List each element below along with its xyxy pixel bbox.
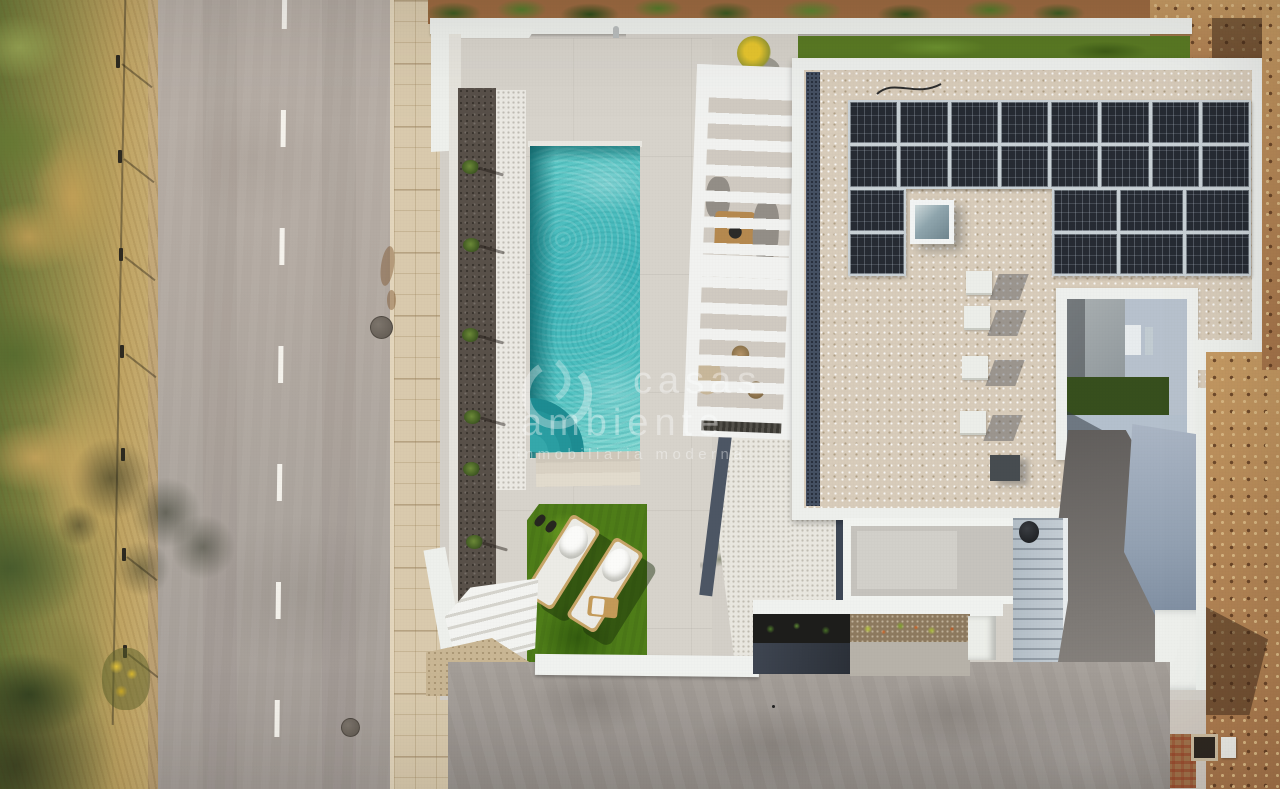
planter-shrub [462, 328, 479, 342]
solar-panel [1054, 190, 1117, 231]
solar-array-lower-right [1052, 188, 1251, 276]
solar-array-top [848, 100, 1251, 189]
terrace-floor [857, 531, 957, 589]
gravel-flower-planter [850, 614, 970, 644]
planter-shrub [466, 535, 483, 549]
slate-paving [753, 643, 850, 674]
white-gravel-strip [496, 90, 526, 490]
pergola-slats-upper [702, 86, 796, 259]
boundary-wall-top [430, 18, 1192, 34]
pool-wide-steps [536, 451, 641, 487]
sidewalk-stain [387, 290, 396, 310]
asphalt-dot [772, 705, 775, 708]
fence-post [120, 345, 124, 358]
driveway-asphalt [448, 662, 1170, 789]
solar-panel [850, 102, 897, 143]
manhole-cover [370, 316, 393, 339]
yellow-flower-bush [102, 648, 150, 710]
roof-cable [875, 76, 945, 100]
solar-panel [850, 234, 904, 275]
solar-array-lower-left [848, 188, 906, 276]
ac-unit [966, 271, 992, 295]
manhole-cover [341, 718, 360, 737]
pergola-slats-lower [696, 276, 789, 417]
solar-panel [850, 190, 904, 231]
lawn-bottom-wall [535, 654, 759, 677]
solar-panel [1051, 102, 1098, 143]
solar-panel [850, 146, 897, 187]
solar-panel [1202, 102, 1249, 143]
pool-top-shadow [530, 146, 640, 162]
roof-vent-box [990, 455, 1020, 481]
skylight-window [910, 200, 954, 244]
wooden-side-table [587, 595, 619, 618]
entry-structure-left [431, 30, 449, 148]
courtyard-turf [1067, 377, 1169, 415]
dirt-edge-strip [1262, 0, 1280, 370]
ac-unit [964, 306, 990, 330]
aerial-villa-photo: casas ambiente inmobiliaria moderna [0, 0, 1280, 789]
solar-panel [1101, 146, 1148, 187]
solar-panel [951, 146, 998, 187]
solar-panel [1051, 146, 1098, 187]
planter-shrub [463, 462, 480, 476]
solar-panel [900, 146, 947, 187]
planter-shrub [462, 160, 479, 174]
utility-pit [1191, 734, 1218, 761]
solar-panel [900, 102, 947, 143]
exterior-staircase [1013, 518, 1068, 668]
black-soil-planter [753, 614, 850, 644]
fence-post [116, 55, 120, 68]
fence-post [118, 150, 122, 163]
white-pillar-box [968, 616, 996, 660]
solar-panel [951, 102, 998, 143]
dirt-plot-right [1206, 352, 1280, 789]
solar-panel [1186, 190, 1249, 231]
planter-shrub [463, 238, 480, 252]
side-table-top [591, 598, 605, 615]
roof-drain-strip [806, 72, 820, 506]
utility-box [1221, 737, 1236, 758]
planter-shrub [464, 410, 481, 424]
fence-post [119, 248, 123, 261]
ac-unit [962, 356, 988, 380]
solar-panel [1120, 234, 1183, 275]
courtyard-window [1145, 327, 1153, 355]
solar-panel [1101, 102, 1148, 143]
solar-panel [1152, 146, 1199, 187]
tire-wear-band [322, 0, 356, 789]
concrete-pad [850, 642, 970, 676]
louvered-pergola [683, 64, 809, 440]
ac-unit [960, 411, 986, 435]
courtyard-window [1125, 325, 1141, 355]
tire-wear-band [203, 0, 237, 789]
lower-terrace [843, 518, 1023, 604]
solar-panel [1001, 146, 1048, 187]
dark-plant-pot [1019, 521, 1039, 543]
solar-panel [1186, 234, 1249, 275]
solar-panel [1202, 146, 1249, 187]
solar-panel [1120, 190, 1183, 231]
tree-shadow [46, 418, 264, 633]
solar-panel [1152, 102, 1199, 143]
solar-panel [1054, 234, 1117, 275]
solar-panel [1001, 102, 1048, 143]
